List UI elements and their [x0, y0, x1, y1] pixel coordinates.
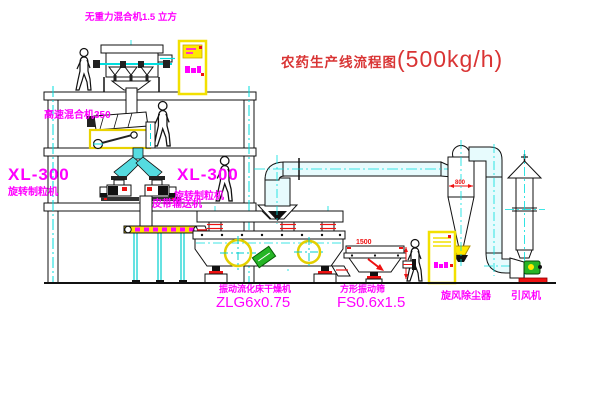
dimension-cyclone-diameter: 800: [455, 180, 465, 186]
person-second-floor: [154, 102, 170, 146]
label-sieve-model: FS0.6x1.5: [337, 295, 405, 310]
control-cabinet-top: [179, 41, 206, 94]
flow-diagram-page: 农药生产线流程图(500kg/h) 无重力混合机1.5 立方 高速混合机350 …: [0, 0, 600, 403]
label-granulator-left-name: 旋转制粒机: [8, 188, 58, 198]
granulator-left-machine: [100, 176, 139, 201]
exhaust-duct: [254, 155, 452, 224]
vibrating-sieve-machine: [344, 246, 416, 283]
label-cyclone: 旋风除尘器: [441, 292, 491, 302]
induced-draft-fan-machine: [510, 258, 547, 283]
page-title-zh: 农药生产线流程图: [281, 55, 397, 70]
downcomer-duct: [469, 144, 520, 276]
label-granulator-left-model: XL-300: [8, 166, 70, 183]
label-granulator-mid-model: XL-300: [177, 166, 239, 183]
label-dryer-name: 振动流化床干燥机: [219, 285, 291, 294]
person-top-floor: [76, 49, 91, 91]
discharge-chute: [140, 196, 152, 228]
label-dryer-model: ZLG6x0.75: [216, 295, 290, 310]
dimension-sieve-length: 1500: [356, 239, 372, 246]
label-sieve-name: 方形振动筛: [340, 285, 385, 294]
label-gravity-mixer: 无重力混合机1.5 立方: [85, 13, 177, 23]
label-belt-conveyor: 皮带输送机: [152, 200, 202, 210]
page-title: 农药生产线流程图(500kg/h): [281, 48, 503, 71]
label-fan: 引风机: [511, 292, 541, 302]
page-title-capacity: (500kg/h): [397, 46, 503, 72]
label-high-speed-mixer: 高速混合机350: [44, 111, 111, 121]
control-cabinet-ground: [429, 232, 455, 283]
